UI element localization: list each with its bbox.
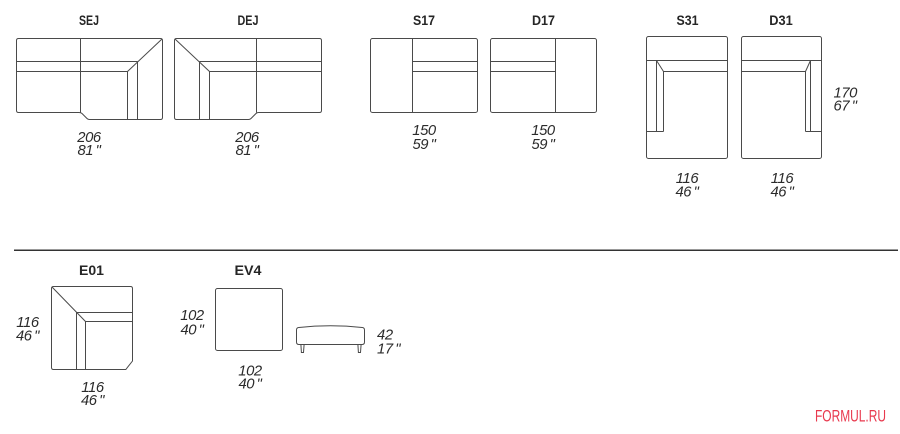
svg-text:S31: S31 xyxy=(677,12,699,28)
svg-text:EV4: EV4 xyxy=(235,262,262,278)
svg-text:46 ": 46 " xyxy=(81,393,105,409)
svg-text:SEJ: SEJ xyxy=(79,12,99,28)
svg-text:81 ": 81 " xyxy=(77,143,101,159)
svg-text:59 ": 59 " xyxy=(531,137,555,153)
svg-text:46 ": 46 " xyxy=(16,329,40,345)
svg-text:59 ": 59 " xyxy=(412,137,436,153)
svg-text:81 ": 81 " xyxy=(235,143,259,159)
svg-text:46 ": 46 " xyxy=(675,185,699,201)
svg-text:DEJ: DEJ xyxy=(238,12,259,28)
svg-text:40 ": 40 " xyxy=(180,323,204,339)
svg-text:40 ": 40 " xyxy=(238,377,262,393)
svg-text:S17: S17 xyxy=(413,12,435,28)
svg-text:FORMUL.RU: FORMUL.RU xyxy=(815,408,886,426)
svg-text:D31: D31 xyxy=(769,12,793,28)
svg-text:17 ": 17 " xyxy=(377,342,401,358)
svg-text:E01: E01 xyxy=(79,262,104,278)
svg-text:67 ": 67 " xyxy=(834,99,858,115)
svg-text:D17: D17 xyxy=(532,12,555,28)
svg-text:46 ": 46 " xyxy=(770,185,794,201)
